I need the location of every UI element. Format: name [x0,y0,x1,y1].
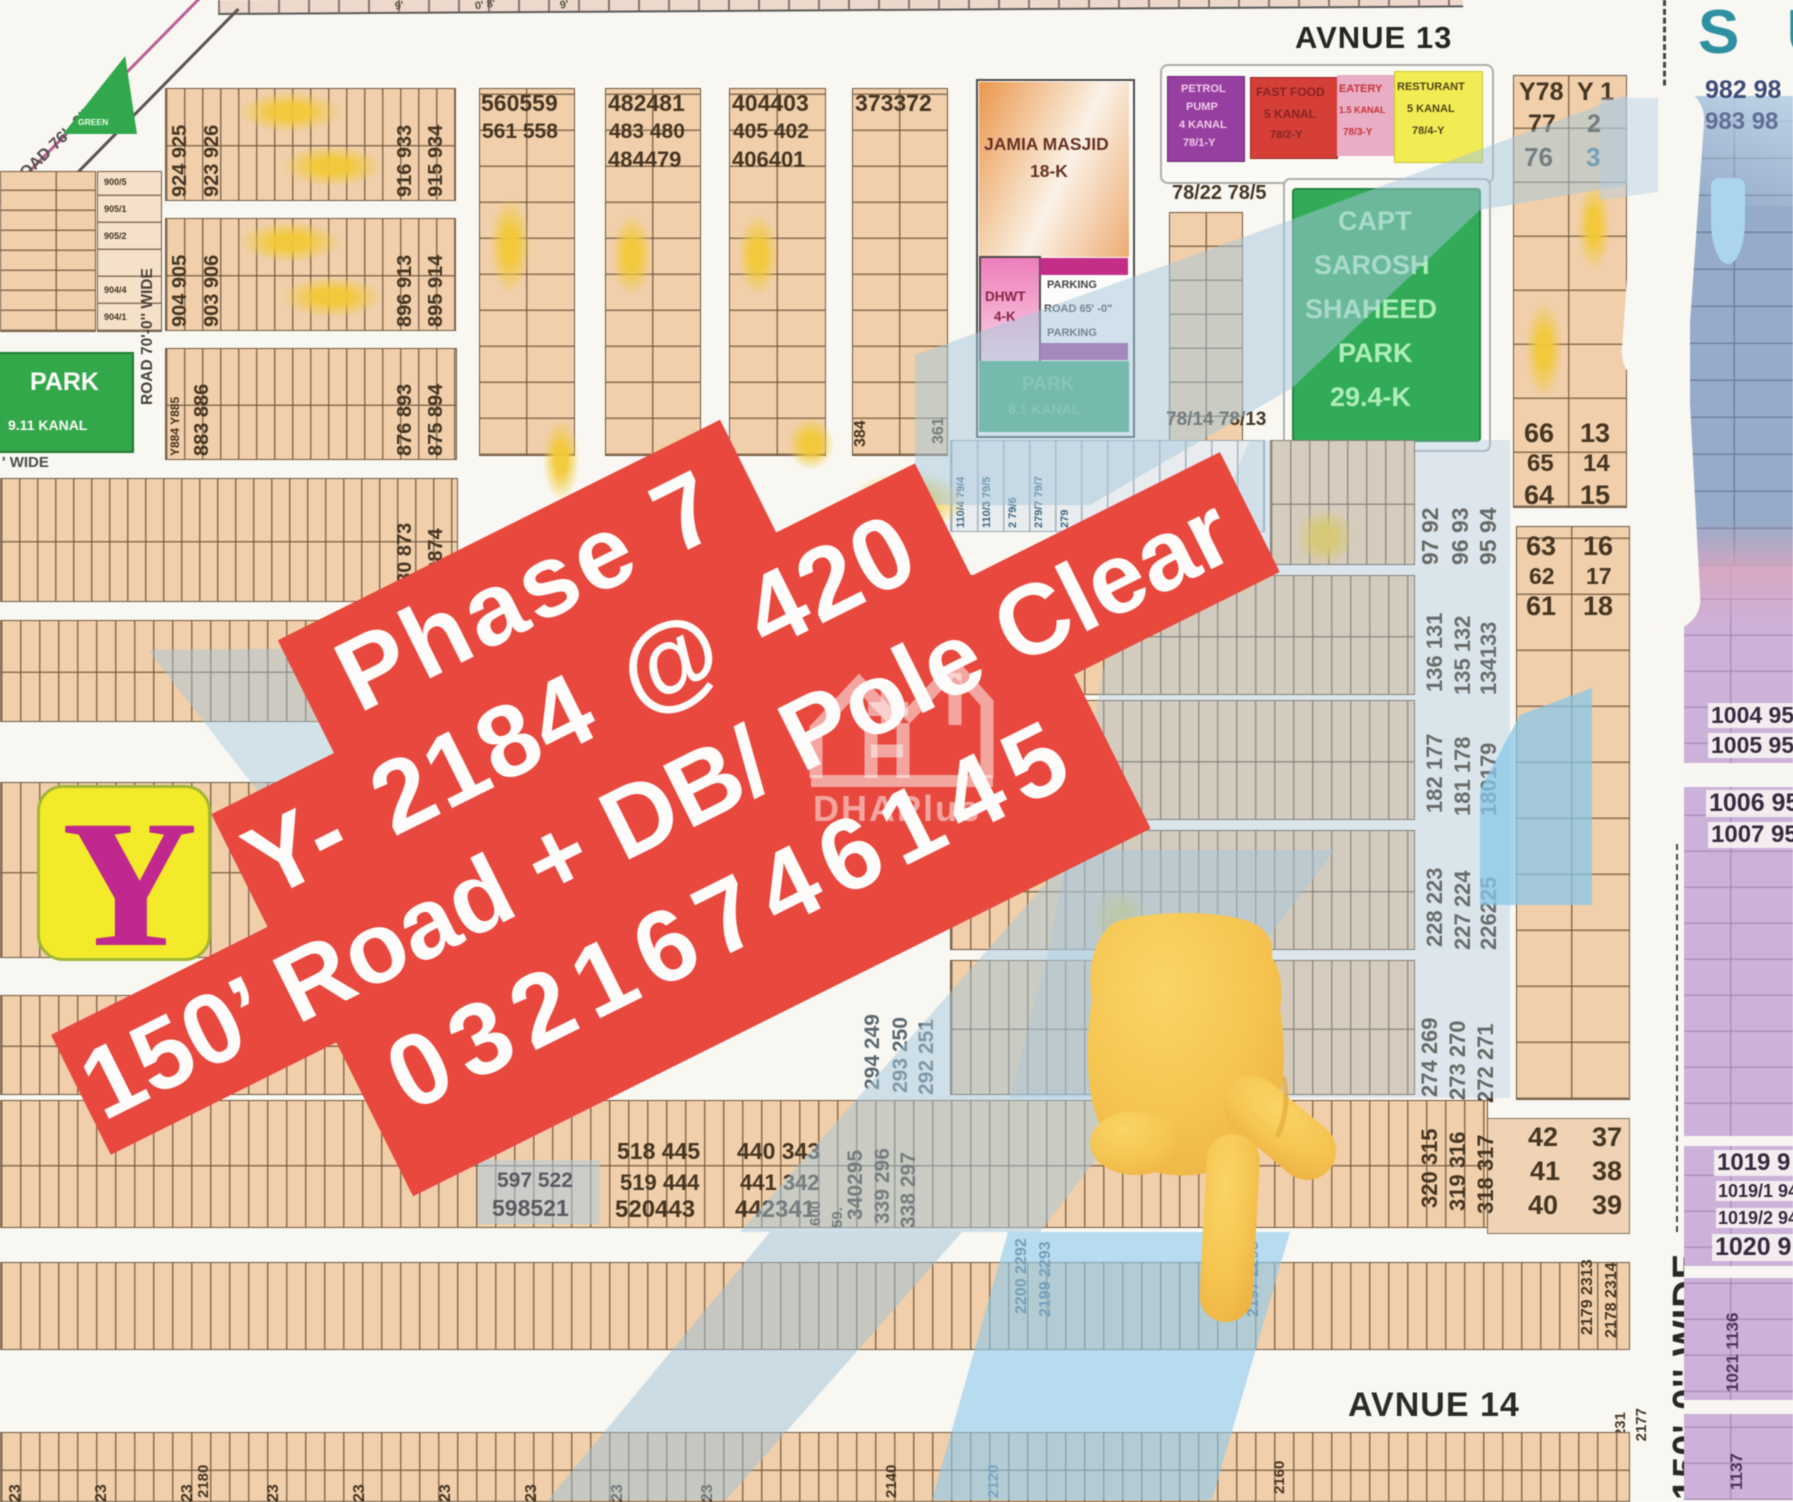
svg-text:DHAPlus: DHAPlus [813,788,981,829]
